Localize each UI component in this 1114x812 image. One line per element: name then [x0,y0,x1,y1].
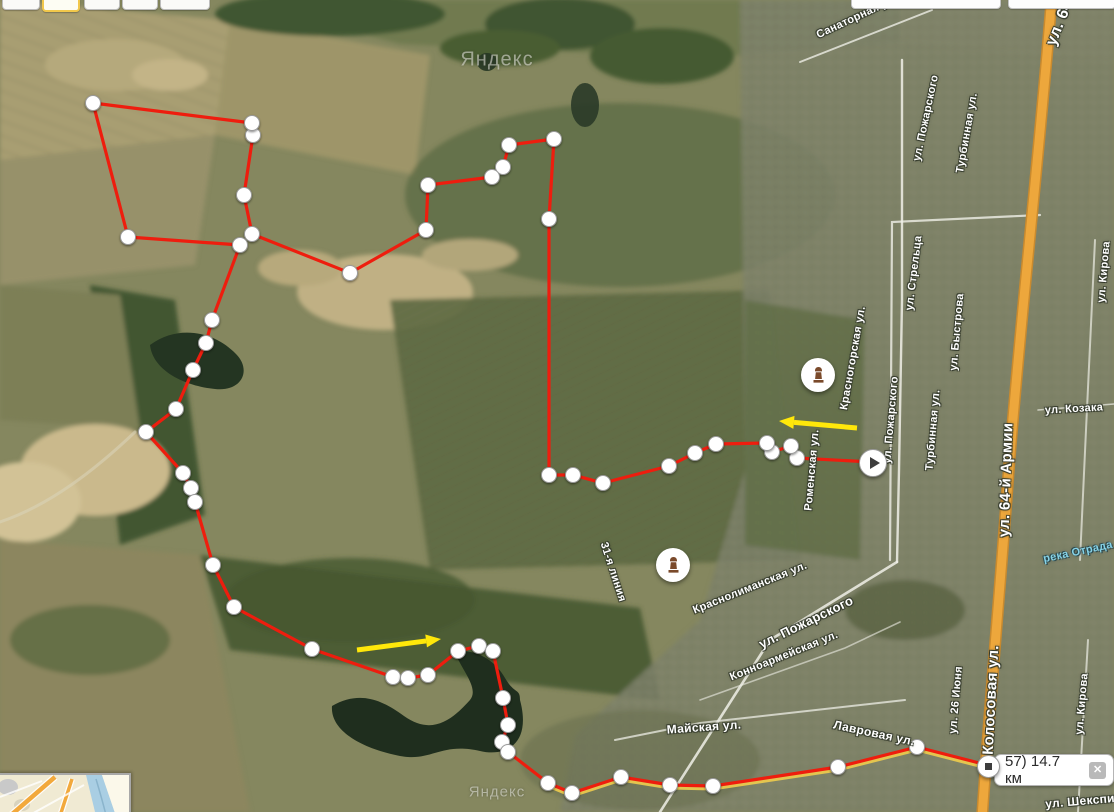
monument-placemark[interactable] [801,358,835,392]
route-waypoint[interactable] [542,468,557,483]
route-waypoint[interactable] [485,170,500,185]
map-viewport[interactable]: Санаторная ул.ул. 64-йул. ПожарскогоТурб… [0,0,1114,812]
route-waypoint[interactable] [206,558,221,573]
overview-minimap[interactable] [0,773,131,812]
route-waypoint[interactable] [186,363,201,378]
yandex-watermark: Яндекс [469,784,525,801]
route-waypoint[interactable] [401,671,416,686]
top-panel-fragment-2[interactable] [1008,0,1114,9]
monument-icon [666,556,681,574]
route-waypoint[interactable] [451,644,466,659]
monument-placemark[interactable] [656,548,690,582]
toolbar-button-1[interactable] [2,0,40,10]
route-start-marker[interactable] [859,449,887,477]
ruler-distance-badge: 57) 14.7 км ✕ [994,754,1114,786]
route-waypoint[interactable] [245,116,260,131]
minimap-canvas [0,775,129,812]
toolbar-button-2-selected[interactable] [42,0,80,12]
top-panel-fragment-1[interactable] [851,0,1001,9]
yandex-watermark: Яндекс [460,49,533,72]
route-waypoint[interactable] [709,437,724,452]
route-waypoint[interactable] [541,776,556,791]
toolbar-button-4[interactable] [122,0,158,10]
route-waypoint[interactable] [547,132,562,147]
route-waypoint[interactable] [501,718,516,733]
route-waypoint[interactable] [596,476,611,491]
route-end-marker[interactable] [977,755,1000,778]
route-waypoint[interactable] [496,691,511,706]
route-waypoint[interactable] [784,439,799,454]
route-waypoint[interactable] [760,436,775,451]
route-waypoint[interactable] [237,188,252,203]
route-waypoint[interactable] [566,468,581,483]
route-waypoint[interactable] [386,670,401,685]
route-waypoint[interactable] [421,668,436,683]
route-waypoint[interactable] [614,770,629,785]
route-waypoint[interactable] [501,745,516,760]
play-triangle-icon [870,457,880,469]
distance-value: 57) 14.7 км [1005,753,1080,787]
route-waypoint[interactable] [831,760,846,775]
route-waypoint[interactable] [139,425,154,440]
route-waypoint[interactable] [188,495,203,510]
route-waypoint[interactable] [472,639,487,654]
route-waypoint[interactable] [227,600,242,615]
terrain-layer [0,0,1114,812]
route-waypoint[interactable] [343,266,358,281]
route-waypoint[interactable] [662,459,677,474]
satellite-map [0,0,1114,812]
route-waypoint[interactable] [421,178,436,193]
close-icon[interactable]: ✕ [1089,762,1106,779]
route-waypoint[interactable] [199,336,214,351]
route-waypoint[interactable] [176,466,191,481]
route-waypoint[interactable] [486,644,501,659]
toolbar-button-5[interactable] [160,0,210,10]
route-waypoint[interactable] [565,786,580,801]
route-waypoint[interactable] [502,138,517,153]
route-waypoint[interactable] [706,779,721,794]
route-waypoint[interactable] [419,223,434,238]
route-waypoint[interactable] [169,402,184,417]
route-waypoint[interactable] [542,212,557,227]
route-waypoint[interactable] [86,96,101,111]
route-waypoint[interactable] [233,238,248,253]
route-waypoint[interactable] [663,778,678,793]
route-waypoint[interactable] [205,313,220,328]
route-waypoint[interactable] [245,227,260,242]
route-waypoint[interactable] [121,230,136,245]
stop-square-icon [985,763,992,770]
route-waypoint[interactable] [184,481,199,496]
route-waypoint[interactable] [305,642,320,657]
toolbar-button-3[interactable] [84,0,120,10]
monument-icon [811,366,826,384]
route-waypoint[interactable] [688,446,703,461]
